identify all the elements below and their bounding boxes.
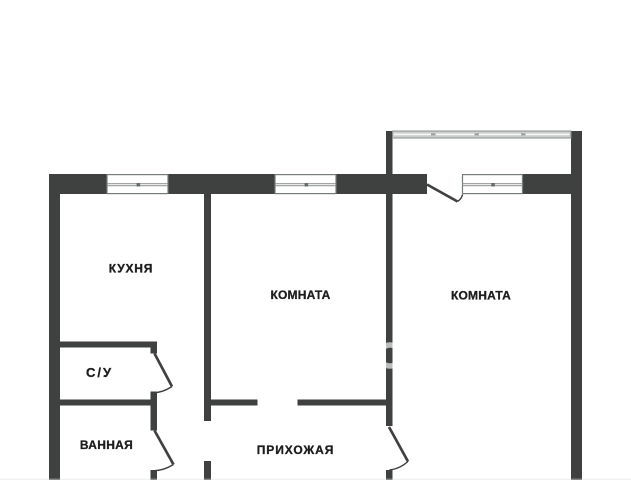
- svg-text:КОМНАТА: КОМНАТА: [451, 289, 511, 303]
- svg-text:С/У: С/У: [86, 365, 113, 380]
- svg-text:КУХНЯ: КУХНЯ: [109, 262, 153, 276]
- svg-text:ВАННАЯ: ВАННАЯ: [80, 438, 133, 452]
- svg-text:КОМНАТА: КОМНАТА: [270, 288, 330, 302]
- svg-text:ПРИХОЖАЯ: ПРИХОЖАЯ: [257, 443, 334, 457]
